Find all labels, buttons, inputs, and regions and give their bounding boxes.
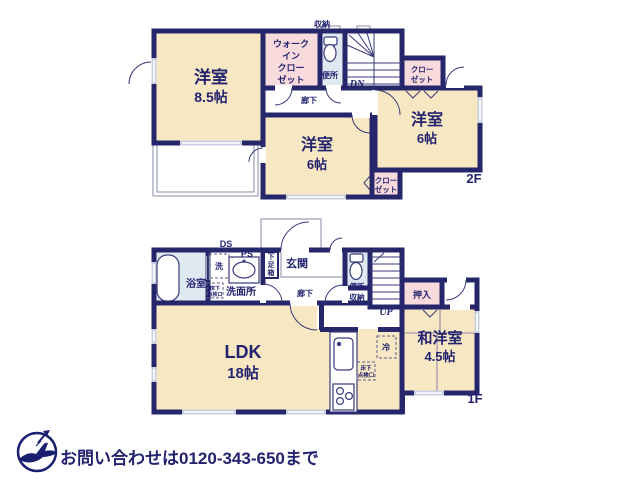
svg-text:8.5帖: 8.5帖	[194, 89, 227, 105]
label-1f-bath: 浴室	[186, 277, 206, 290]
label-2f-room6r: 洋室	[411, 110, 443, 129]
porch-1f	[261, 219, 321, 250]
label-hatch-2: 床下	[360, 364, 372, 372]
label-1f-senmen: 洗面所	[226, 285, 256, 298]
label-2f-closet-top: クロー	[411, 64, 434, 74]
label-1f-fridge: 冷	[382, 342, 391, 352]
label-2f-room85: 洋室	[194, 67, 228, 87]
svg-text:6帖: 6帖	[307, 157, 327, 172]
vanity-sink	[229, 257, 259, 283]
label-1f-getabako: 下	[268, 253, 275, 261]
label-2f-rouka: 廊下	[301, 95, 317, 105]
balcony-2f	[153, 143, 258, 196]
room-2f-yoshitsu-85	[154, 31, 263, 143]
svg-text:箱: 箱	[268, 268, 275, 277]
contact-phone-text: お問い合わせは0120-343-650まで	[60, 448, 319, 468]
toilet-fixture-1f	[350, 254, 363, 280]
label-1f-ds: DS	[220, 239, 233, 249]
label-1f-washitsu: 和洋室	[417, 329, 462, 347]
label-1f-washer: 洗	[215, 261, 223, 271]
company-logo-icon	[18, 430, 57, 471]
label-2f-closet-bottom: クロー	[375, 175, 398, 185]
svg-text:点検口: 点検口	[358, 371, 375, 379]
label-2f-dn: DN	[349, 79, 365, 90]
room-2f-hallway	[263, 88, 375, 115]
label-1f-ps: PS	[241, 249, 253, 259]
room-2f-yoshitsu-6-right	[375, 88, 480, 170]
label-1f-ldk: LDK	[225, 342, 262, 362]
kitchen-counter	[330, 332, 357, 412]
floor-2f: 収納 ウォーク イン クロー ゼット 便所 DN クロー ゼット 廊下 洋室 8…	[129, 19, 483, 200]
label-2f-wic: ウォーク	[273, 39, 309, 49]
label-2f-shuno: 収納	[314, 19, 330, 29]
label-hatch-1: 床下	[210, 285, 220, 292]
svg-text:クロー: クロー	[277, 63, 304, 73]
room-2f-yoshitsu-6-center	[263, 115, 372, 197]
svg-text:18帖: 18帖	[227, 364, 259, 382]
floor-1f: DS 浴室 洗 PS 洗面所 床下 点検口 下 足 箱 玄関 廊下 便所 収納 …	[152, 219, 483, 415]
svg-text:4.5帖: 4.5帖	[424, 349, 455, 364]
floor-plan-drawing: 収納 ウォーク イン クロー ゼット 便所 DN クロー ゼット 廊下 洋室 8…	[0, 0, 640, 480]
label-1f-genkan: 玄関	[286, 256, 308, 270]
toilet-fixture-2f	[324, 37, 337, 62]
svg-text:ゼット: ゼット	[277, 74, 304, 85]
room-1f-landing	[442, 280, 477, 307]
bird-glyph	[19, 443, 57, 463]
label-2f-benjo: 便所	[322, 70, 338, 80]
label-1f-shuno: 収納	[350, 292, 365, 302]
svg-text:ゼット: ゼット	[411, 74, 434, 84]
svg-text:足: 足	[268, 261, 276, 269]
label-1f-oshiire: 押入	[413, 289, 432, 300]
label-1f-rouka: 廊下	[297, 288, 313, 298]
footer: お問い合わせは0120-343-650まで	[18, 430, 319, 471]
label-1f-benjo: 便所	[350, 281, 365, 291]
svg-text:点検口: 点検口	[207, 291, 222, 298]
svg-text:ゼット: ゼット	[375, 184, 398, 194]
svg-text:イン: イン	[282, 51, 300, 61]
label-2f-room6c: 洋室	[301, 135, 333, 154]
floor-plan-page: 収納 ウォーク イン クロー ゼット 便所 DN クロー ゼット 廊下 洋室 8…	[0, 0, 640, 480]
label-1f-floor: 1F	[467, 391, 482, 406]
label-2f-floor: 2F	[466, 171, 481, 186]
label-1f-up: UP	[379, 307, 393, 318]
svg-text:6帖: 6帖	[417, 131, 437, 146]
